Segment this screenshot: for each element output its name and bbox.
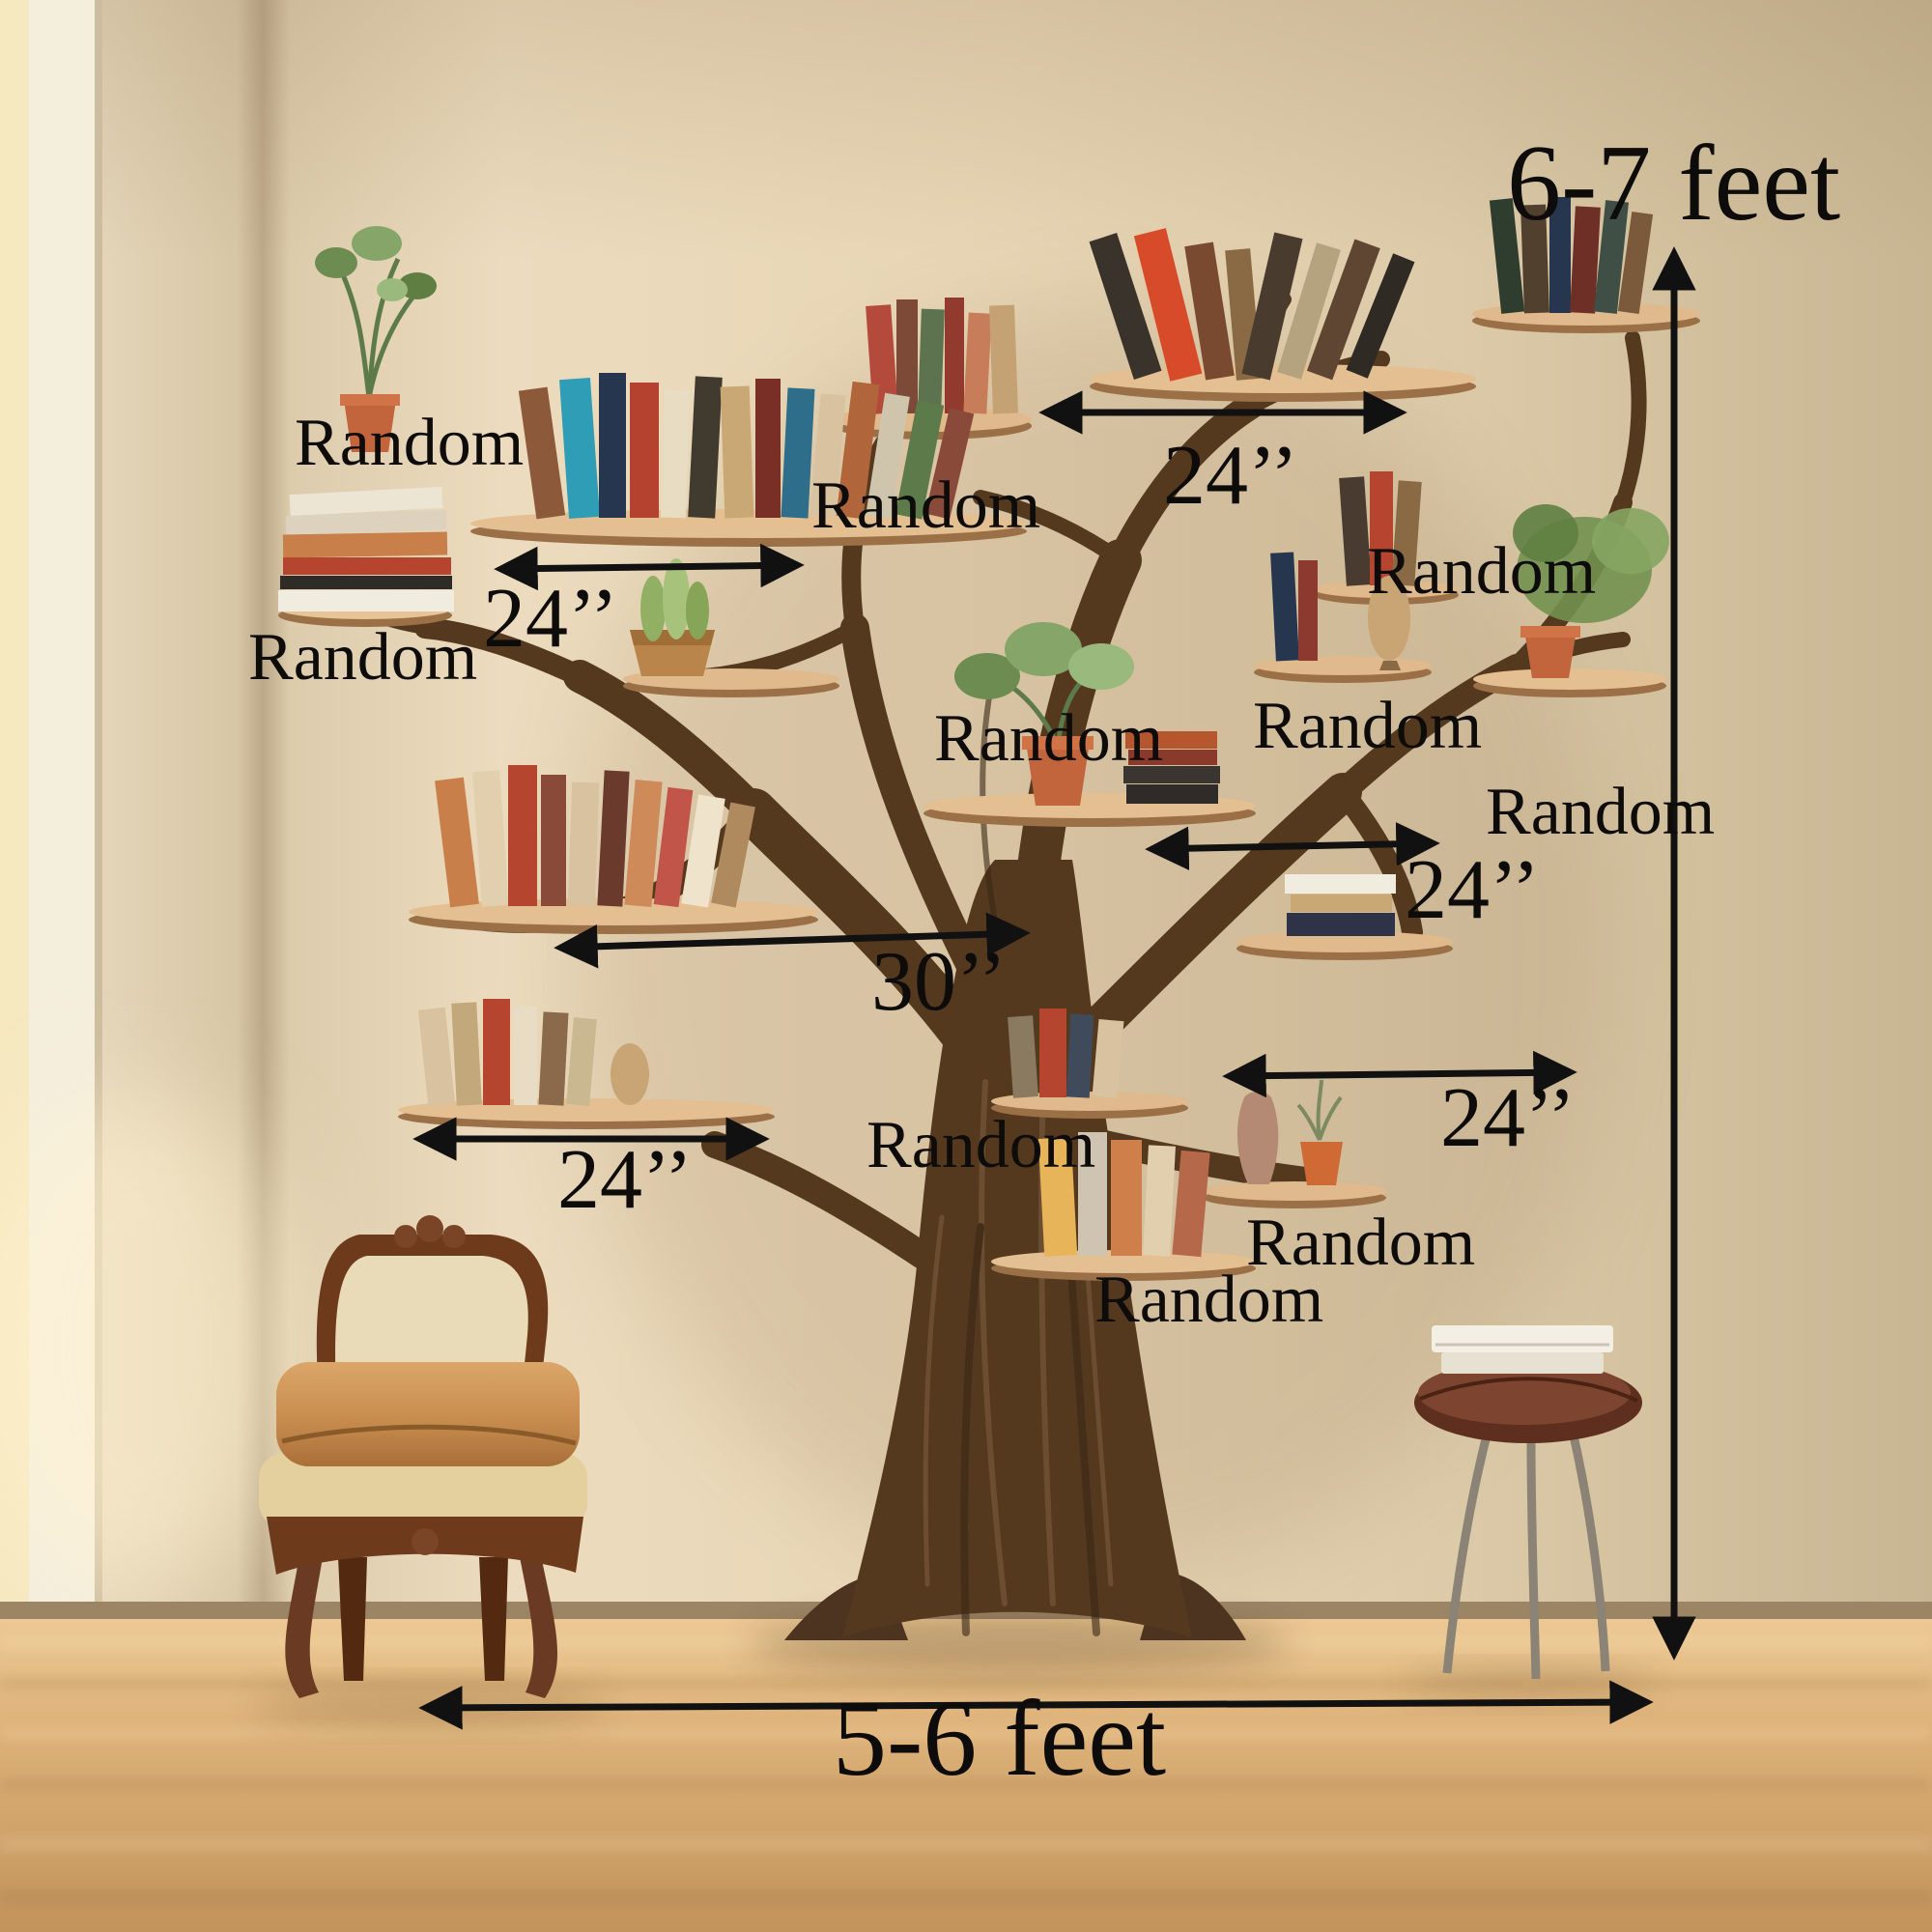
random-shelf-label-right-upper: Random	[1367, 538, 1596, 606]
random-shelf-label-center-right: Random	[1253, 693, 1482, 760]
random-shelf-label-bottom-center: Random	[1094, 1266, 1323, 1334]
width-dimension-label: 5-6 feet	[833, 1685, 1166, 1793]
shelf-width-label-lower-right: 24’’	[1440, 1076, 1576, 1161]
random-shelf-label-center-lower: Random	[867, 1112, 1095, 1179]
random-shelf-label-center: Random	[934, 705, 1163, 773]
random-shelf-label-far-right: Random	[1486, 779, 1715, 846]
shelf-width-label-top: 24’’	[1163, 434, 1298, 519]
shelf-width-label-middle-right: 24’’	[1405, 848, 1540, 933]
random-shelf-label-left-middle: Random	[248, 624, 477, 692]
shelf-width-label-lower-left: 24’’	[557, 1138, 693, 1223]
height-dimension-label: 6-7 feet	[1507, 129, 1840, 238]
random-shelf-label-top-left: Random	[295, 410, 524, 477]
random-shelf-label-top-middle: Random	[811, 472, 1040, 540]
shelf-width-label-middle: 30’’	[871, 940, 1007, 1025]
annotation-labels: 6-7 feet 5-6 feet 24’’ 24’’ 30’’ 24’’ 24…	[0, 0, 1932, 1932]
shelf-width-label-upper-left: 24’’	[483, 577, 618, 662]
annotated-photo: 6-7 feet 5-6 feet 24’’ 24’’ 30’’ 24’’ 24…	[0, 0, 1932, 1932]
